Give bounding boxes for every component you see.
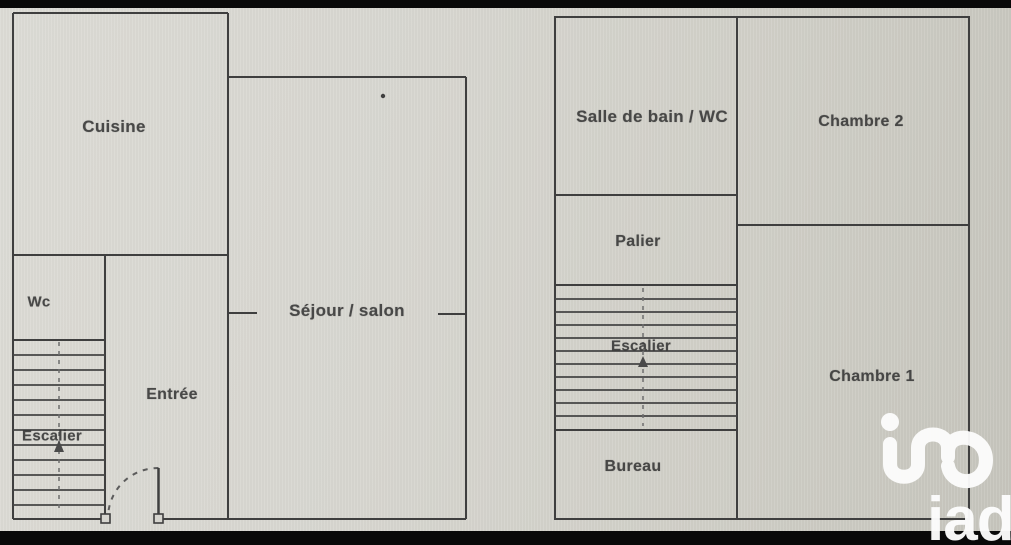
iad-logo-mark-icon bbox=[0, 0, 1011, 545]
floorplan-photo: Cuisine Séjour / salon Wc Escalier Entré… bbox=[0, 0, 1011, 545]
iad-logo-text: iad bbox=[927, 489, 1011, 545]
